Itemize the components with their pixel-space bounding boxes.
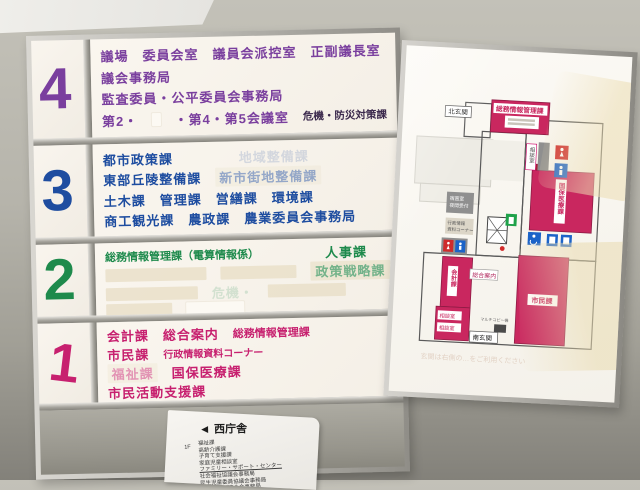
left-arrow-icon: ◀ (201, 423, 208, 434)
department-name: 政策戦略課 (310, 260, 390, 281)
paper-header: ◀ 西庁舎 (201, 419, 319, 437)
floor-plan: 北玄関 総務情報管理課 相談室 国保医療課 宿直室 夜間受付 行政情報 資料コー… (394, 51, 622, 380)
department-name: 議員会派控室 (212, 42, 296, 63)
floor-map-board: 北玄関 総務情報管理課 相談室 国保医療課 宿直室 夜間受付 行政情報 資料コー… (383, 40, 637, 408)
department-line: 議会事務局 (101, 61, 386, 86)
department-name: 人事課 (325, 241, 367, 261)
department-name: ・第4・第5会議室 (174, 107, 289, 129)
elevator-door (509, 217, 514, 224)
fire-hydrant-icon (500, 246, 505, 251)
floor-number: 2 (43, 251, 77, 310)
paper-department-list: 福祉課高齢介護課子育て支援課家庭児童相談室ファミリー・サポート・センター社会福祉… (198, 435, 319, 490)
elevator-door (549, 236, 555, 243)
floor-departments-panel: 総務情報管理課（電算情報係）人事課政策戦略課危機・ (95, 237, 402, 316)
tape-patch (220, 265, 296, 280)
department-name: 行政情報資料コーナー (163, 344, 263, 361)
service-box (537, 142, 549, 171)
department-name: 第2・ (102, 111, 139, 131)
restroom-figure (459, 246, 462, 250)
department-name: 議場 (100, 45, 128, 65)
department-name: 商工観光課 (104, 210, 174, 231)
department-name: 土木課 (104, 190, 146, 210)
department-name: 会計課 (107, 325, 149, 345)
floor-number-panel: 2 (36, 244, 90, 317)
floor-number: 3 (41, 162, 75, 221)
paper-body: 1F 福祉課高齢介護課子育て支援課家庭児童相談室ファミリー・サポート・センター社… (198, 435, 319, 490)
floor-number-panel: 4 (31, 40, 85, 139)
photo-scene: { "directory": { "floors": [ { "number":… (0, 0, 640, 480)
floor-departments-panel: 議場委員会室議員会派控室正副議長室議会事務局監査委員・公平委員会事務局第2・・第… (90, 33, 397, 138)
department-name: 営繕課 (216, 188, 258, 208)
floor-number-panel: 1 (38, 323, 92, 404)
elevator-door (563, 237, 569, 244)
paper-notice: ◀ 西庁舎 1F 福祉課高齢介護課子育て支援課家庭児童相談室ファミリー・サポート… (164, 410, 320, 490)
restroom-figure (559, 170, 562, 175)
department-name: 東部丘陵整備課 (103, 168, 201, 189)
department-name: 地域整備課 (239, 145, 309, 166)
paper-floor-label: 1F (184, 444, 191, 450)
department-name: 管理課 (160, 189, 202, 209)
department-name: 新市街地整備課 (215, 166, 321, 187)
department-name: 監査委員・公平委員会事務局 (101, 86, 283, 109)
floor-number: 4 (38, 60, 72, 119)
faint-notice-text: 玄関は右側の…をご利用ください (420, 351, 525, 365)
paper-title: 西庁舎 (214, 420, 247, 437)
floor-map: 北玄関 総務情報管理課 相談室 国保医療課 宿直室 夜間受付 行政情報 資料コー… (389, 45, 633, 402)
department-name: 正副議長室 (310, 40, 380, 61)
department-name: 都市政策課 (103, 148, 173, 169)
floor-number: 1 (46, 335, 82, 392)
ceiling-light (0, 0, 230, 36)
department-name: 環境課 (272, 186, 314, 206)
department-name: 国保医療課 (171, 361, 241, 382)
department-line: 監査委員・公平委員会事務局 (101, 83, 386, 108)
tape-patch (152, 113, 161, 126)
floor-number-panel: 3 (33, 145, 87, 238)
copy-machine-icon (494, 324, 506, 333)
copy-machine-label: マルチコピー機 (480, 315, 508, 322)
floor-departments-panel: 都市政策課地域整備課東部丘陵整備課新市街地整備課土木課管理課営繕課環境課商工観光… (92, 138, 399, 237)
department-name: 市民課 (107, 344, 149, 364)
floor-departments-panel: 会計課総合案内総務情報管理課市民課行政情報資料コーナー福祉課国保医療課市民活動支… (97, 316, 404, 403)
department-name: 農政課 (188, 209, 230, 229)
tape-patch (105, 267, 206, 282)
department-name: 危機・ (212, 282, 254, 302)
accessible-icon (527, 232, 541, 246)
directory-board-panels: 4議場委員会室議員会派控室正副議長室議会事務局監査委員・公平委員会事務局第2・・… (31, 33, 405, 475)
department-name: 議会事務局 (101, 66, 171, 87)
department-line: 議場委員会室議員会派控室正副議長室 (100, 40, 385, 65)
floor-row-2: 2総務情報管理課（電算情報係）人事課政策戦略課危機・ (36, 237, 402, 317)
covered-room (482, 139, 526, 181)
department-name: 農業委員会事務局 (244, 206, 356, 228)
department-name: 福祉課 (107, 363, 157, 383)
department-name: 危機・防災対策課 (303, 107, 387, 124)
department-name: 総合案内 (163, 324, 219, 344)
department-name: 総務情報管理課（電算情報係） (105, 245, 259, 264)
floor-row-3: 3都市政策課地域整備課東部丘陵整備課新市街地整備課土木課管理課営繕課環境課商工観… (33, 138, 399, 238)
department-name: 委員会室 (142, 44, 198, 64)
department-name: 総務情報管理課 (233, 323, 310, 341)
floor-row-1: 1会計課総合案内総務情報管理課市民課行政情報資料コーナー福祉課国保医療課市民活動… (38, 316, 404, 404)
tape-patch (106, 303, 172, 316)
department-line: 第2・・第4・第5会議室危機・防災対策課 (102, 105, 387, 130)
floor-row-4: 4議場委員会室議員会派控室正副議長室議会事務局監査委員・公平委員会事務局第2・・… (31, 33, 397, 139)
department-name: 市民活動支援課 (108, 381, 206, 402)
tape-patch (106, 286, 198, 301)
tape-patch (268, 283, 346, 298)
